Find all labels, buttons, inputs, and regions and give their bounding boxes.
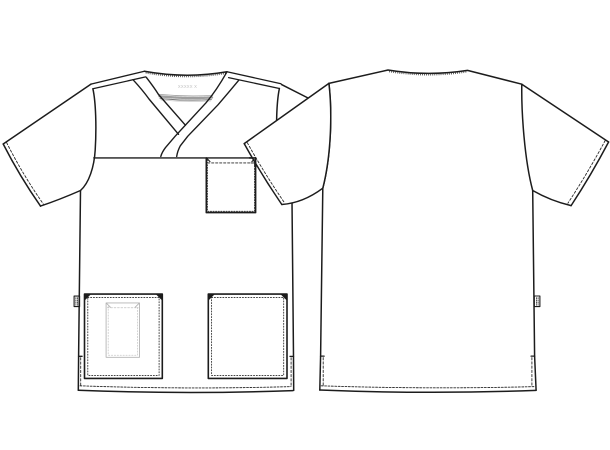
svg-text:XXXXX X: XXXXX X [178,84,197,89]
